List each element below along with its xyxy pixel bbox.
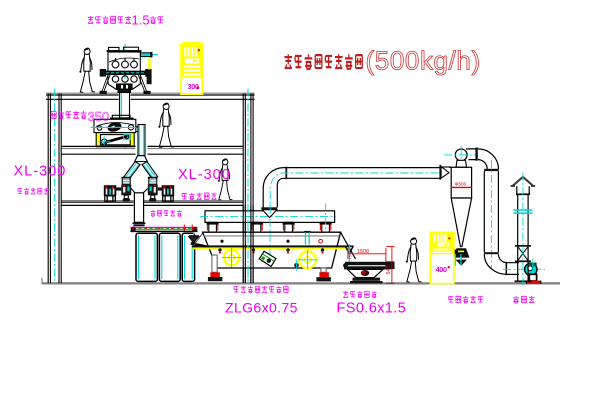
svg-text:XL-300: XL-300 [14,164,67,180]
svg-text:300: 300 [188,82,199,91]
svg-text:540: 540 [386,266,392,275]
svg-text:FS0.6x1.5: FS0.6x1.5 [337,301,407,317]
svg-text:1.5: 1.5 [132,13,150,28]
svg-text:350: 350 [88,109,110,124]
svg-text:Φ500: Φ500 [455,181,467,186]
svg-text:ZLG6x0.75: ZLG6x0.75 [225,300,298,316]
svg-text:75: 75 [349,255,353,259]
svg-text:1500: 1500 [357,249,369,255]
svg-text:400: 400 [436,265,447,274]
svg-text:XL-300: XL-300 [178,167,231,183]
svg-text:(500kg/h): (500kg/h) [366,46,481,76]
